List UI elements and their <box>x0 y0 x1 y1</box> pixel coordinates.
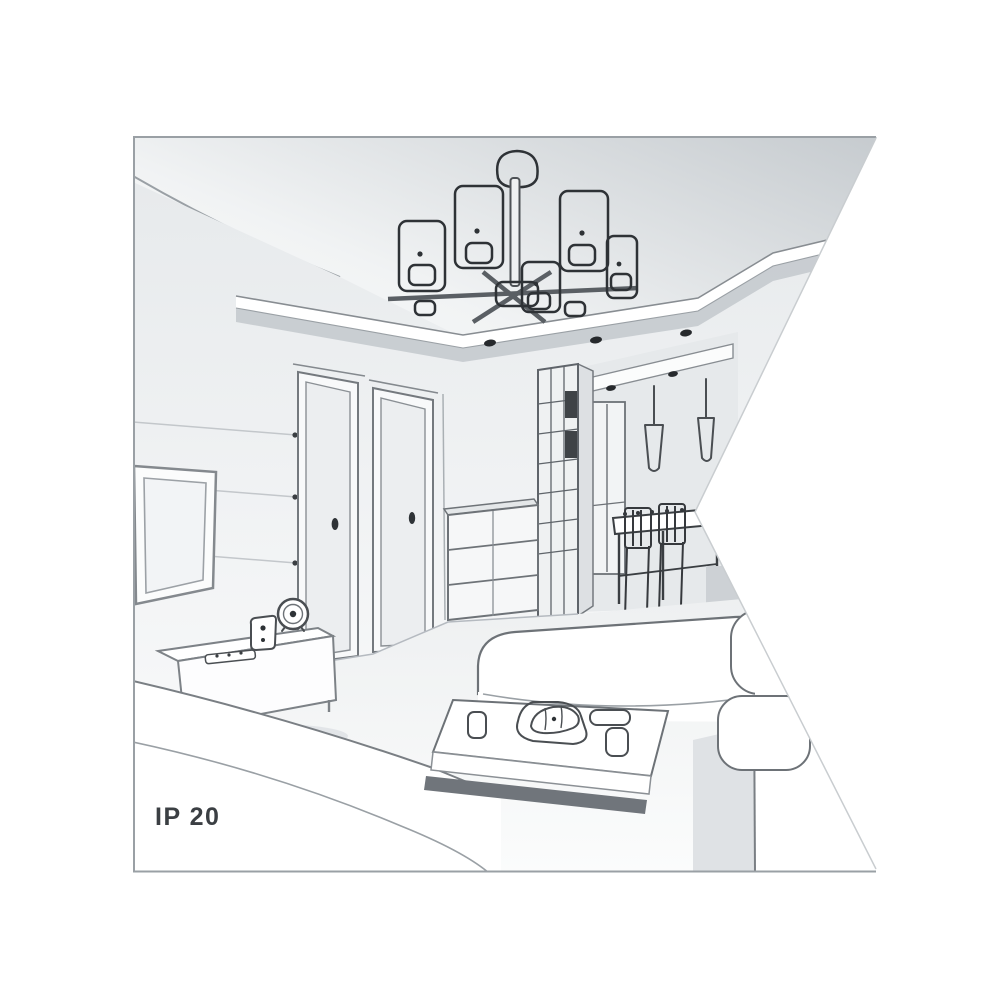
chandelier-stem <box>511 178 520 286</box>
ip-rating-label: IP 20 <box>155 805 220 830</box>
clock <box>278 599 308 631</box>
speaker <box>251 616 276 650</box>
door-handle <box>332 518 339 530</box>
hallway <box>578 332 746 640</box>
tv <box>134 466 216 604</box>
room-sketch <box>133 136 877 873</box>
door-2 <box>369 380 438 652</box>
dresser <box>444 499 538 620</box>
glass-wardrobe <box>538 364 593 620</box>
room-sketch-svg <box>133 136 877 873</box>
door-handle <box>409 512 415 524</box>
product-image: IP 20 <box>0 0 1000 1000</box>
